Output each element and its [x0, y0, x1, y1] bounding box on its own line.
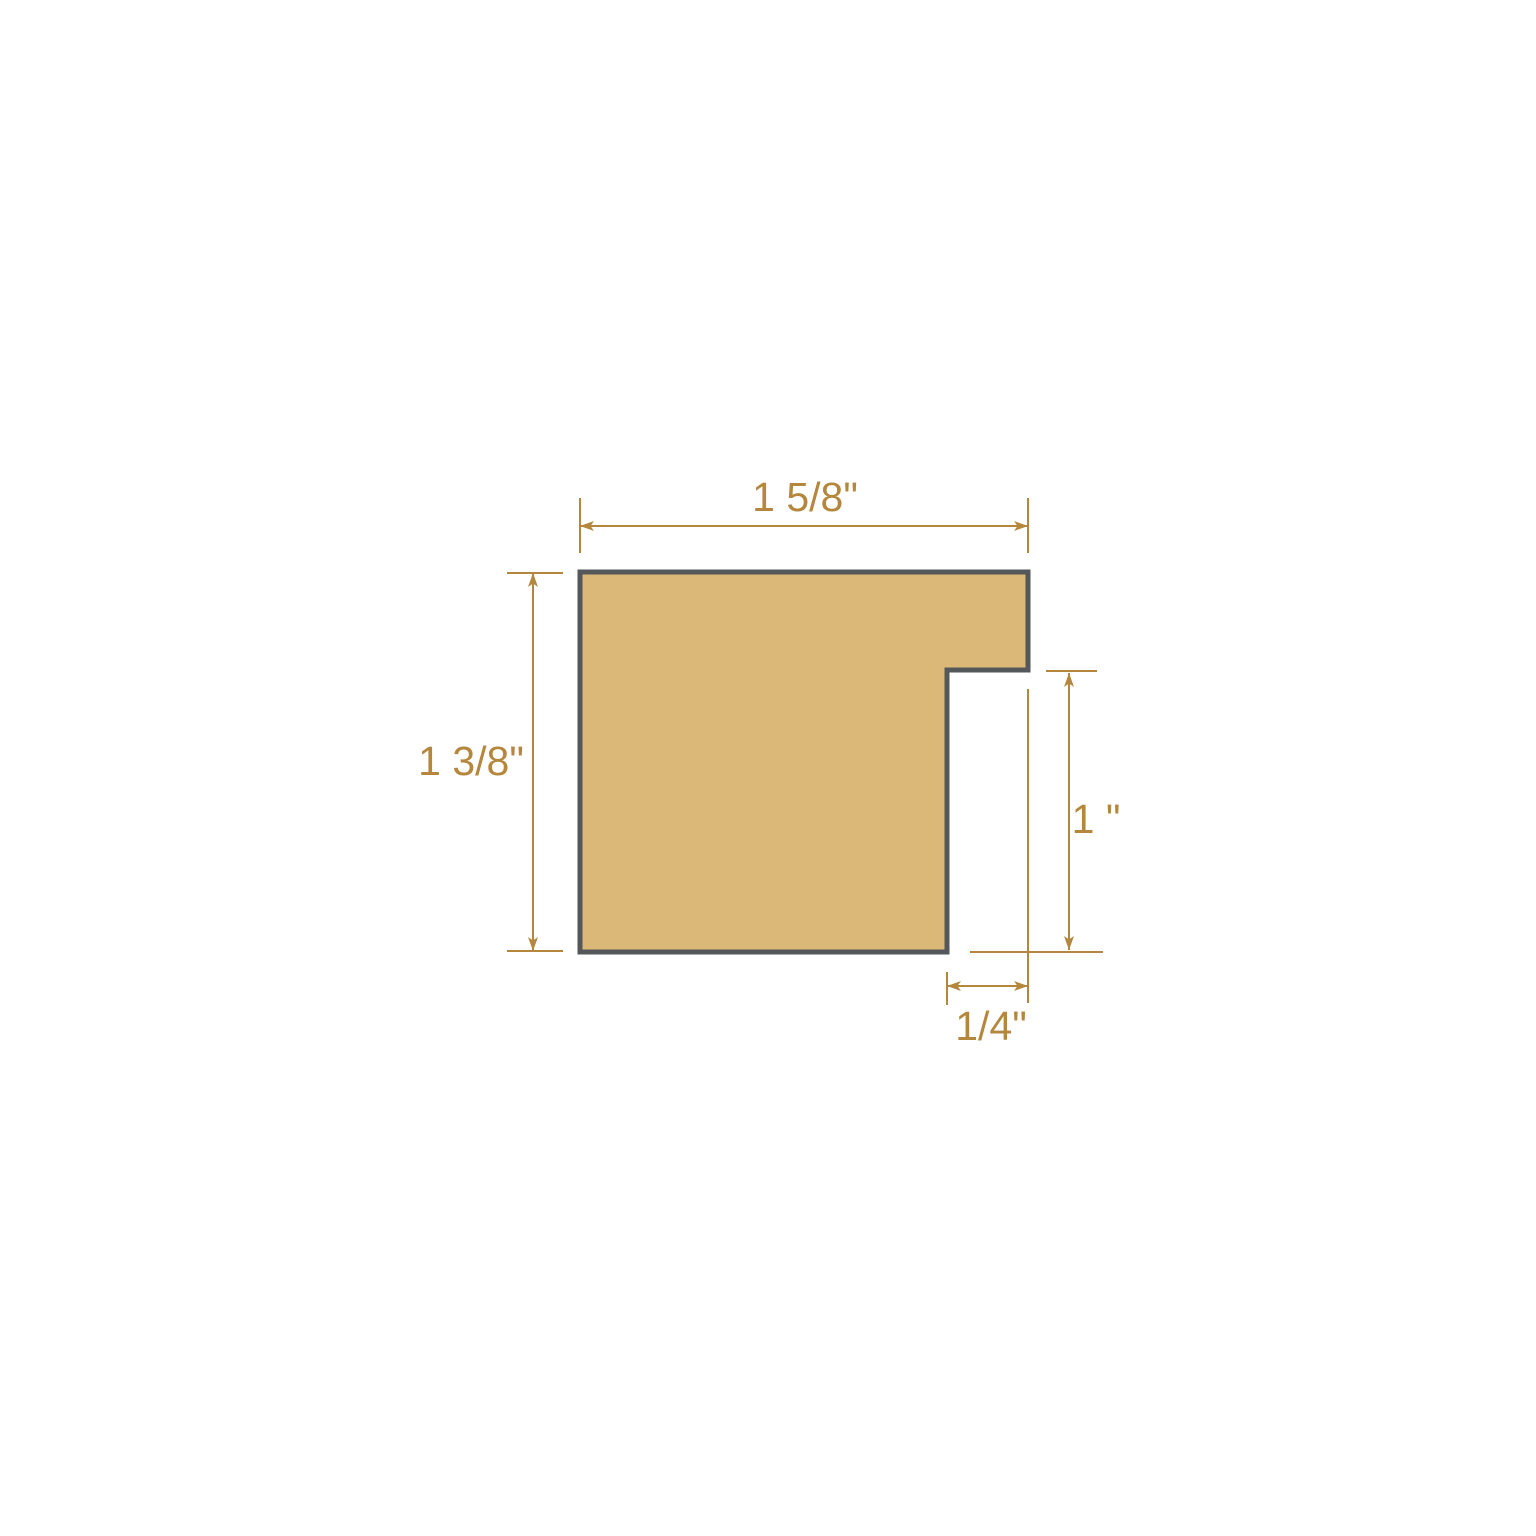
dimension-left-height: 1 3/8" [418, 573, 563, 951]
dimension-right-rabbet-height: 1 " [970, 671, 1120, 952]
dimension-label-bottom-rabbet-width: 1/4" [955, 1003, 1027, 1049]
moulding-cross-section-diagram: 1 5/8" 1 3/8" 1 " 1/4" [0, 0, 1536, 1536]
dimension-label-left-height: 1 3/8" [418, 738, 524, 784]
dimension-label-right-rabbet-height: 1 " [1072, 796, 1121, 842]
diagram-canvas: 1 5/8" 1 3/8" 1 " 1/4" [0, 0, 1536, 1536]
moulding-profile-shape [580, 572, 1028, 952]
dimension-top-width: 1 5/8" [580, 474, 1028, 553]
dimension-bottom-rabbet-width: 1/4" [947, 689, 1028, 1049]
dimension-label-top-width: 1 5/8" [752, 474, 858, 520]
